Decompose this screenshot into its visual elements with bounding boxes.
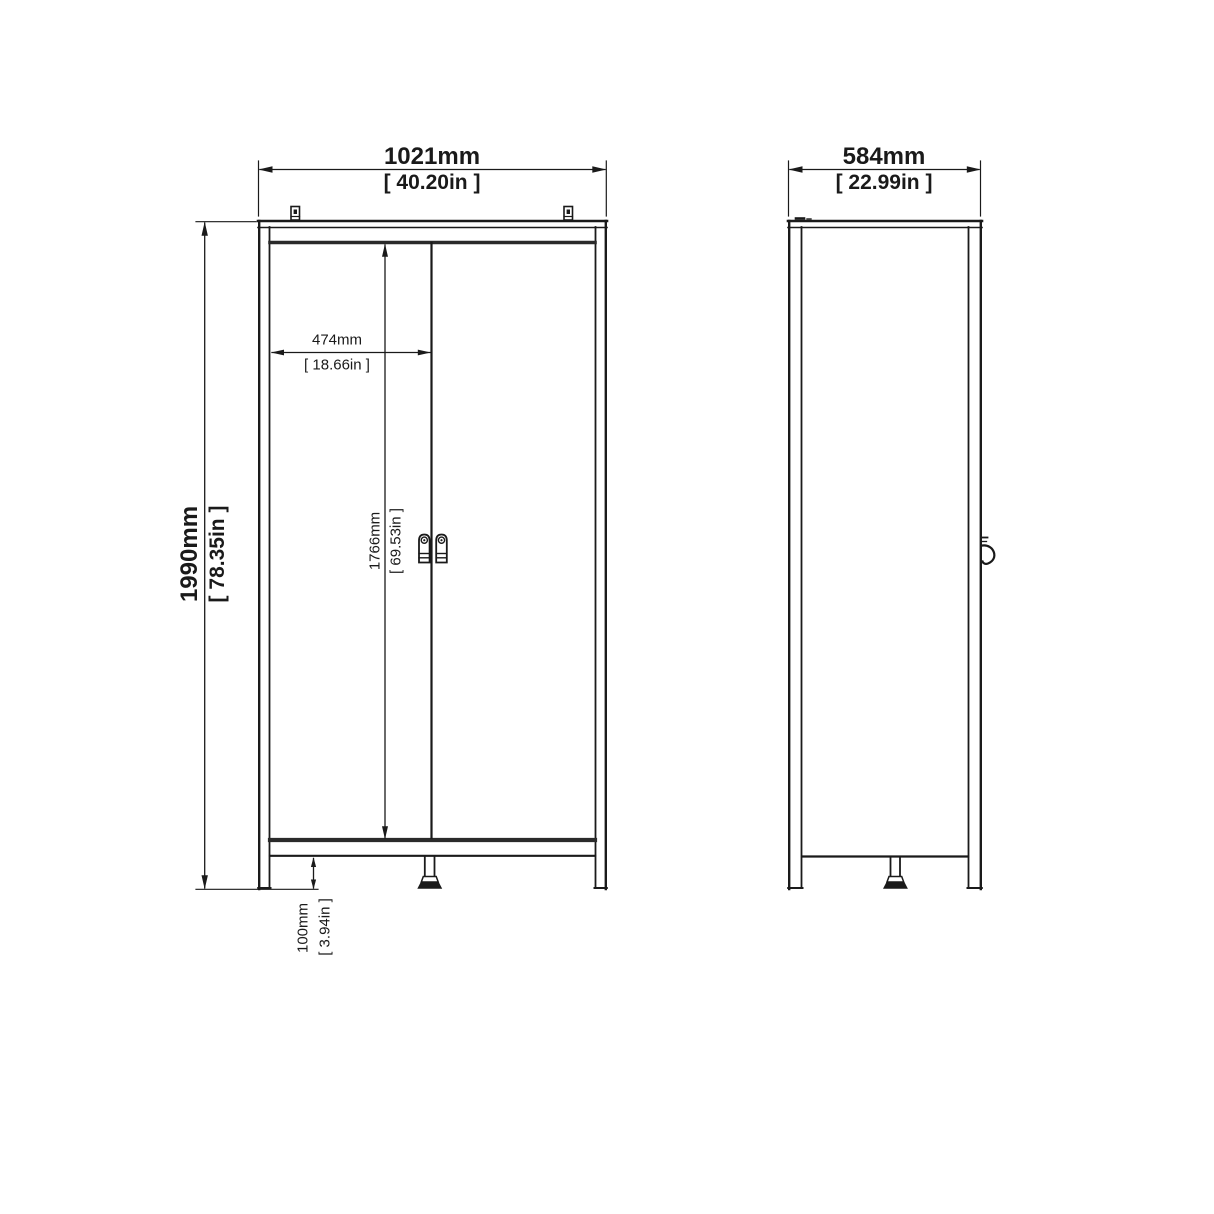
foot-base <box>417 882 442 889</box>
arrow-down <box>382 826 388 839</box>
foot-flare <box>887 877 904 883</box>
wall-bracket-icon <box>291 207 300 221</box>
arrow-left <box>271 350 284 356</box>
wall-bracket-icon <box>564 207 573 221</box>
door-handle-left-icon <box>419 535 430 563</box>
handle-stud-dot <box>423 539 425 541</box>
door-height-mm-label: 1766mm <box>367 512 384 570</box>
arrow-right <box>418 350 431 356</box>
wall-bracket-slot <box>567 210 570 215</box>
adjustable-foot-icon <box>417 857 442 889</box>
handle-profile-loop <box>983 545 995 563</box>
door-width-mm-label: 474mm <box>312 332 362 349</box>
front-height-in-label: [ 78.35in ] <box>206 506 230 603</box>
arrow-up <box>311 857 316 867</box>
arrow-up <box>382 244 388 257</box>
foot-flare <box>421 877 438 883</box>
drawing-canvas: 1021mm [ 40.20in ] 584mm [ 22.99in ] 199… <box>0 0 1214 1214</box>
arrow-down <box>202 875 208 889</box>
wardrobe-line-drawing <box>0 0 1214 1214</box>
side-depth-in-label: [ 22.99in ] <box>836 171 933 195</box>
arrow-left <box>259 166 273 173</box>
front-width-mm-label: 1021mm <box>384 143 480 171</box>
side-depth-mm-label: 584mm <box>843 143 926 171</box>
adjustable-foot-side-icon <box>883 857 908 889</box>
dim-leg-height <box>311 857 316 889</box>
door-width-in-label: [ 18.66in ] <box>304 357 370 374</box>
wall-bracket-slot <box>294 210 297 215</box>
dim-door-width <box>271 350 431 356</box>
arrow-left <box>789 166 803 173</box>
wall-bracket-profile-icon <box>796 219 811 220</box>
foot-base <box>883 882 908 889</box>
side-view-outline <box>788 221 982 889</box>
front-height-mm-label: 1990mm <box>176 506 204 602</box>
door-height-in-label: [ 69.53in ] <box>388 508 405 574</box>
arrow-right <box>592 166 606 173</box>
handle-stud-dot <box>440 539 442 541</box>
leg-height-in-label: [ 3.94in ] <box>317 898 334 956</box>
arrow-up <box>202 222 208 236</box>
front-width-in-label: [ 40.20in ] <box>384 171 481 195</box>
arrow-right <box>967 166 981 173</box>
arrow-down <box>311 880 316 890</box>
door-handle-right-icon <box>436 535 447 563</box>
side-handle-profile-icon <box>982 538 995 564</box>
leg-height-mm-label: 100mm <box>295 903 312 953</box>
